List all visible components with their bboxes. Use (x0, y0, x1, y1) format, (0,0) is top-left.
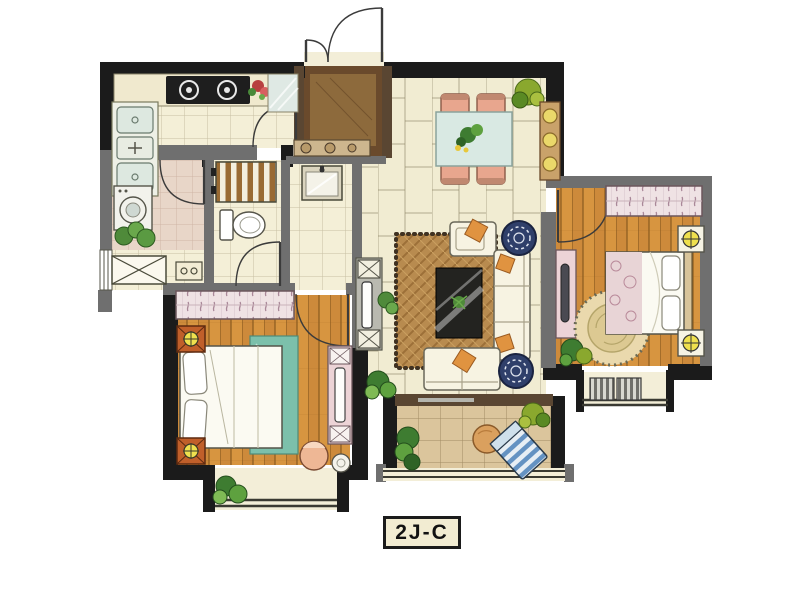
gas-stove (166, 76, 250, 104)
pillow (662, 296, 680, 330)
three-seat-sofa (494, 250, 530, 360)
glass-counter (268, 74, 298, 112)
master-wardrobe (176, 291, 294, 319)
loveseat (424, 348, 500, 390)
unit-type-label: 2J-C (383, 516, 461, 549)
sideboard-with-plates (540, 102, 560, 180)
coffee-table (436, 268, 482, 338)
floorplan-canvas: 2J-C (0, 0, 800, 600)
round-side-table (499, 354, 533, 388)
television (335, 368, 345, 422)
shoe-console (294, 140, 370, 156)
control-panel (176, 262, 202, 280)
pillow (183, 399, 208, 442)
master-nightstand (177, 326, 205, 352)
sliding-door-track (418, 398, 474, 402)
entry-double-door (304, 8, 384, 66)
second-nightstand (678, 226, 704, 252)
second-double-bed (606, 250, 692, 334)
stool (332, 454, 350, 472)
corner-chair (300, 441, 328, 470)
left-wall-window (100, 250, 112, 290)
toilet (220, 210, 265, 240)
master-double-bed (180, 346, 282, 448)
second-nightstand (678, 330, 704, 356)
floorplan-drawing (0, 0, 800, 600)
dresser-with-tv (328, 346, 352, 444)
bathtub-fixture (112, 256, 166, 284)
pillow (183, 351, 208, 394)
round-side-table (502, 221, 536, 255)
bedroom-bench (556, 250, 576, 338)
shower-slats (211, 162, 276, 202)
television (362, 282, 372, 328)
kitchen-sink-unit (112, 102, 158, 196)
pillow (662, 256, 680, 290)
dining-furniture (436, 79, 560, 184)
wash-basin (302, 166, 342, 200)
armchair (450, 219, 496, 256)
second-wardrobe (606, 186, 702, 216)
tv-stand (356, 258, 382, 350)
dining-table (436, 112, 512, 166)
master-nightstand (177, 438, 205, 464)
